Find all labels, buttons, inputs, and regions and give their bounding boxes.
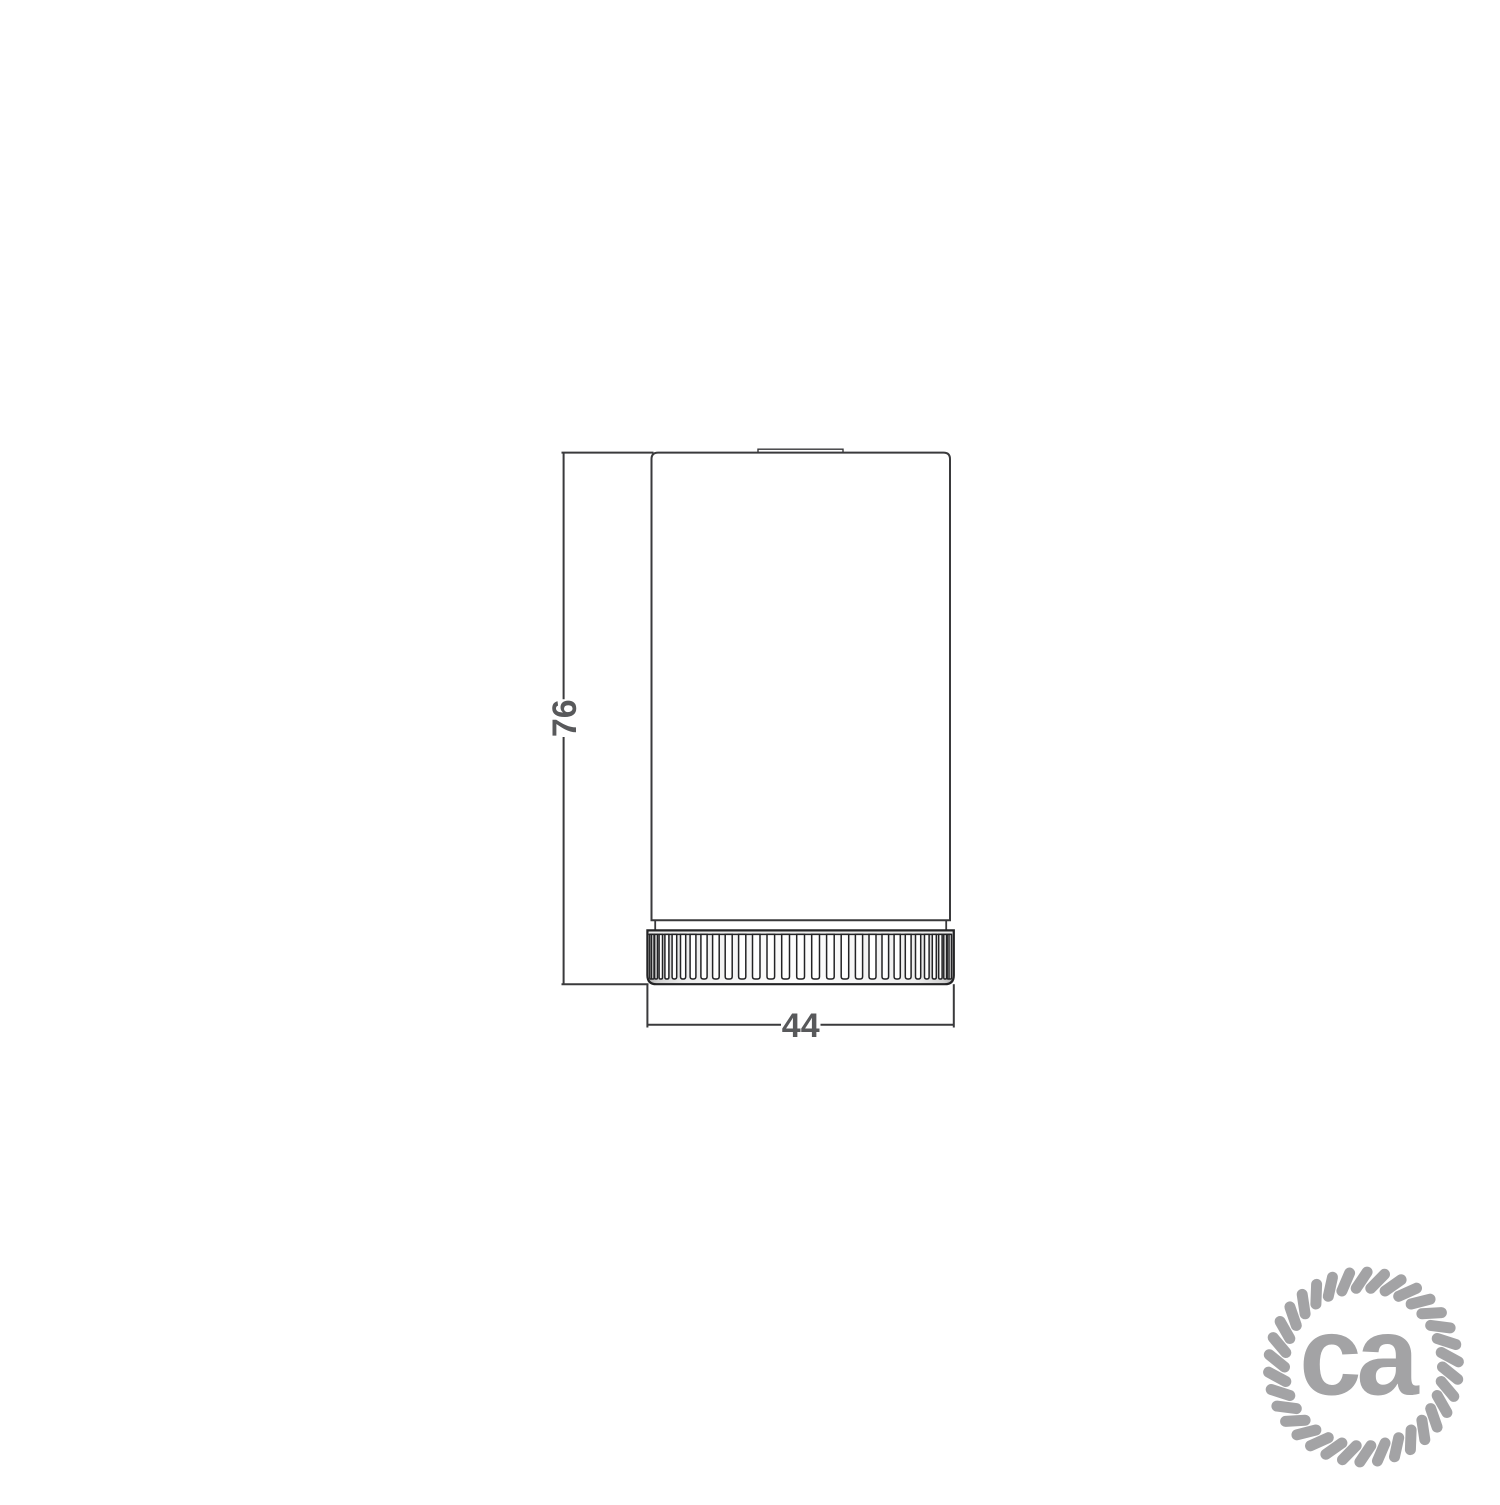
svg-text:ca: ca (1299, 1294, 1419, 1419)
svg-text:44: 44 (782, 1007, 820, 1045)
svg-text:76: 76 (546, 699, 584, 737)
